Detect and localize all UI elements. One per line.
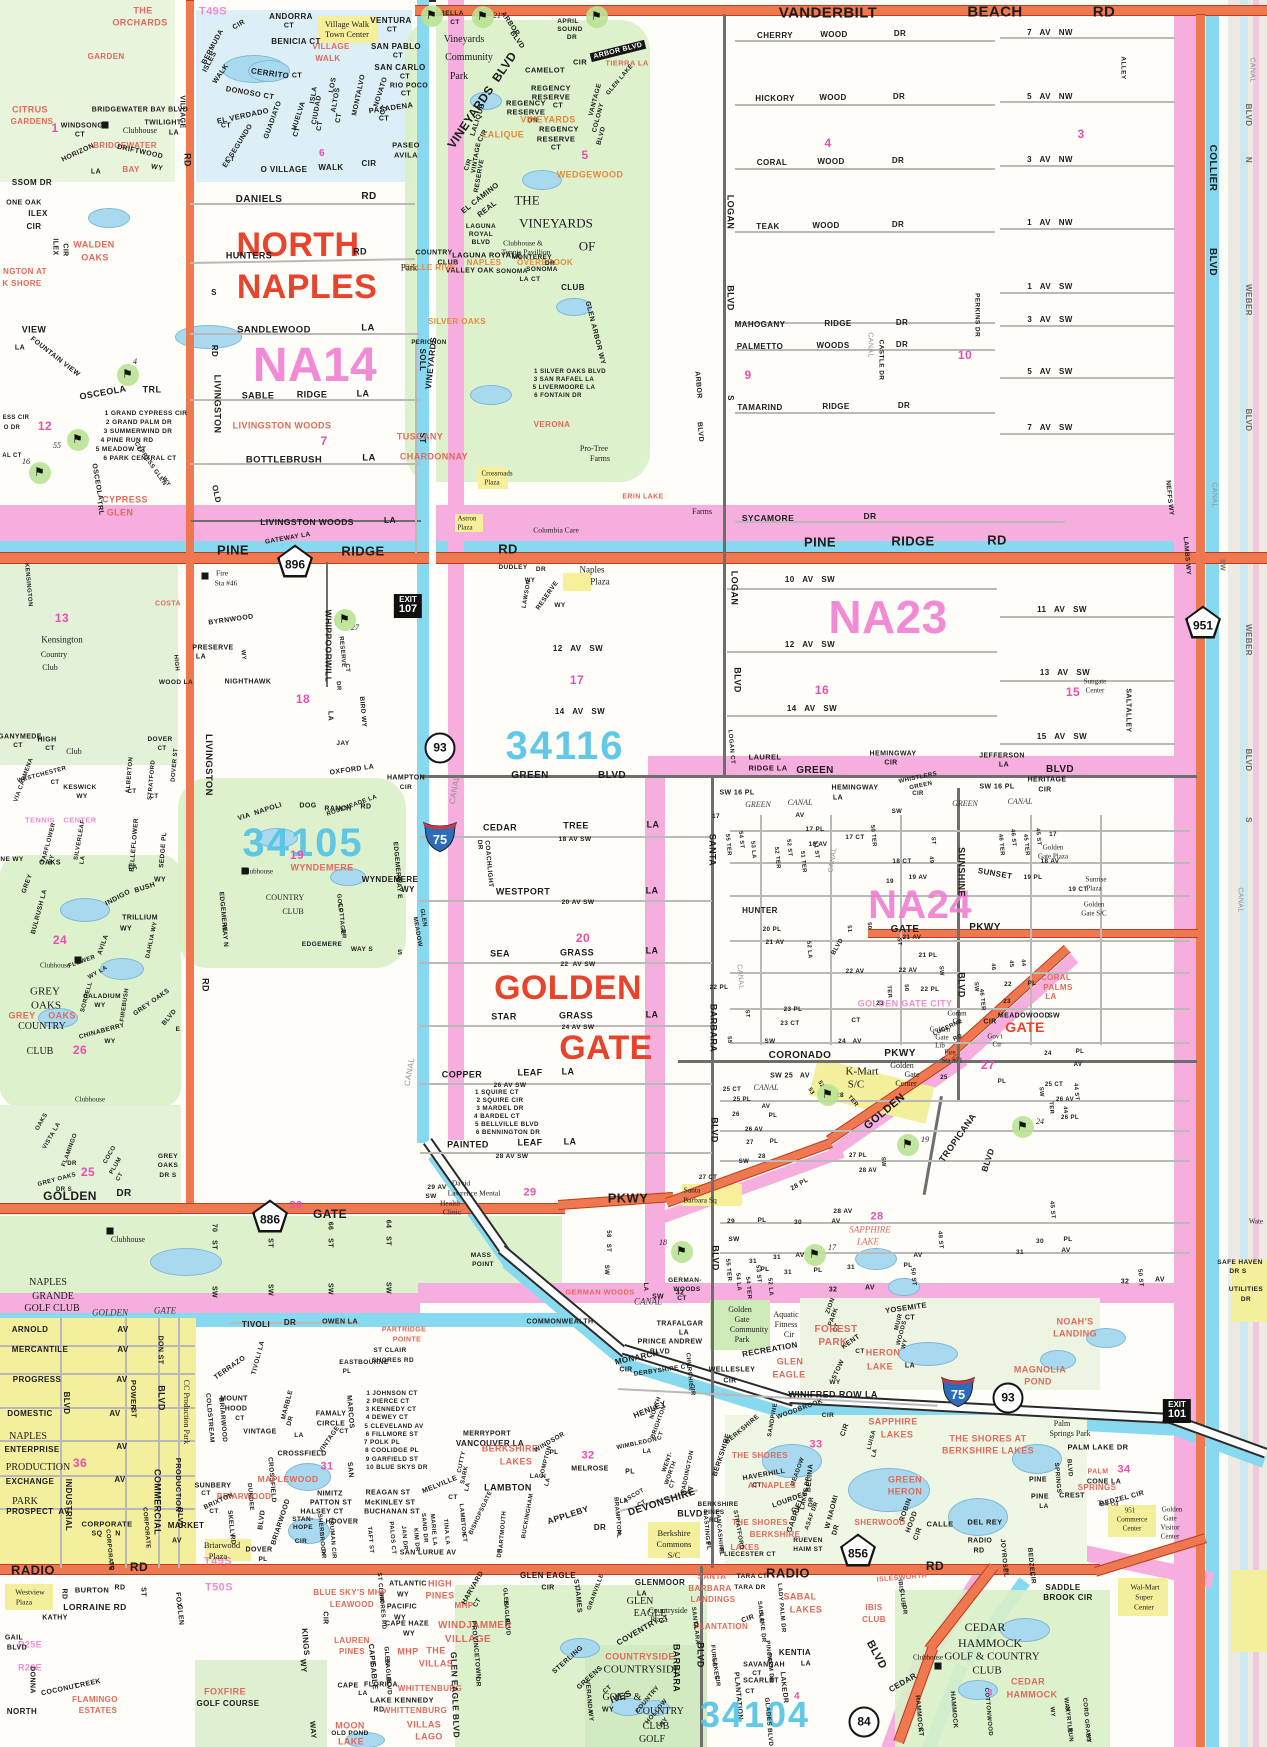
map-label: 17 PL bbox=[806, 827, 825, 833]
map-label: FOXFIRE bbox=[204, 1688, 246, 1697]
map-label: SANTA bbox=[698, 1573, 727, 1581]
map-label: CT bbox=[400, 74, 410, 81]
map-label: CEDAR bbox=[1011, 1678, 1045, 1687]
road-g bbox=[735, 40, 995, 42]
map-label: CIR bbox=[1038, 787, 1051, 794]
park-flag-icon: ⚑ bbox=[334, 609, 356, 631]
map-label: BLVD bbox=[1065, 1459, 1073, 1477]
map-label: WAY bbox=[308, 1721, 317, 1739]
road-g bbox=[720, 1160, 1190, 1162]
map-label: Visitor bbox=[1160, 1525, 1179, 1532]
map-label: DOMESTIC bbox=[7, 1410, 52, 1418]
map-label: FOUNTAIN VIEW bbox=[29, 336, 81, 379]
map-label: 6 FILLMORE ST bbox=[366, 1432, 418, 1438]
map-label: 18 bbox=[659, 1239, 667, 1247]
map-label: SW bbox=[1048, 1013, 1060, 1020]
map-label: LA bbox=[643, 1449, 652, 1455]
map-label: FLAMINGO bbox=[72, 1696, 118, 1704]
map-label: 27 PL bbox=[849, 1153, 867, 1159]
map-label: LAKE bbox=[779, 1671, 788, 1692]
map-label: GREEN bbox=[909, 781, 933, 792]
map-label: TERRAZO bbox=[213, 1355, 247, 1382]
map-label: BARBARA bbox=[688, 1585, 731, 1593]
map-label: 26 AV bbox=[745, 1127, 763, 1133]
map-label: 29 AV bbox=[427, 1185, 446, 1192]
map-label: WAY N bbox=[220, 924, 228, 947]
map-label: 18 bbox=[296, 693, 310, 705]
map-label: WY bbox=[120, 926, 132, 933]
map-label: 28 bbox=[758, 1154, 765, 1160]
map-label: SW bbox=[937, 966, 944, 977]
map-label: Club bbox=[42, 664, 58, 672]
road-g bbox=[190, 203, 415, 205]
map-label: COMMERCIAL bbox=[153, 1469, 162, 1535]
map-label: 12 bbox=[38, 420, 52, 432]
map-label: OF bbox=[579, 240, 596, 253]
map-label: GREEN bbox=[888, 1476, 922, 1485]
map-label: 54 LA bbox=[734, 1273, 742, 1292]
map-label: NAPLES bbox=[467, 259, 502, 267]
map-label: DR bbox=[67, 1161, 76, 1167]
map-label: 7 AV NW bbox=[1027, 29, 1073, 37]
map-label: THE bbox=[426, 1647, 445, 1656]
map-label: WHITTENBURG bbox=[383, 1707, 447, 1715]
map-label: 20 AV SW bbox=[562, 900, 595, 907]
map-label: Community bbox=[730, 1326, 768, 1334]
map-label: BLVD bbox=[726, 285, 735, 310]
map-label: RD bbox=[201, 978, 210, 992]
map-label: AV bbox=[913, 1253, 922, 1260]
map-label: GERMAN WOODS bbox=[565, 1288, 634, 1296]
map-label: DR bbox=[896, 319, 908, 327]
map-label: DR bbox=[567, 35, 577, 42]
map-label: 4 BARDEL CT bbox=[474, 1114, 520, 1120]
map-label: 3 bbox=[1077, 128, 1084, 140]
map-label: TIVOLI bbox=[242, 1321, 270, 1329]
map-label: 23 CT bbox=[780, 1021, 799, 1027]
map-label: SEA bbox=[490, 950, 510, 959]
map-label: CIR bbox=[541, 1585, 554, 1592]
map-label: AV bbox=[1074, 1062, 1083, 1068]
map-label: MAPLEWOOD bbox=[258, 1475, 319, 1484]
map-label: PL bbox=[343, 1369, 351, 1375]
map-label: PROGRESS bbox=[13, 1376, 62, 1384]
map-label: OXFORD LA bbox=[329, 763, 374, 776]
map-label: 49 ST bbox=[936, 1231, 944, 1249]
map-label: WEBER bbox=[1244, 284, 1252, 316]
map-label: ST bbox=[327, 1238, 334, 1248]
map-label: DR bbox=[116, 1189, 131, 1199]
map-label: CANAL bbox=[735, 964, 744, 990]
map-label: CORAL bbox=[757, 159, 787, 167]
map-label: CIR bbox=[27, 223, 42, 231]
map-label: GLEN bbox=[107, 509, 134, 518]
map-label: RIO POCO bbox=[390, 83, 428, 90]
map-label: EDGEMERE bbox=[302, 942, 342, 949]
map-label: 27 bbox=[981, 1059, 995, 1071]
route-shield-84: 84 bbox=[849, 1707, 880, 1738]
map-label: RD bbox=[61, 1589, 68, 1600]
map-label: 21 PL bbox=[919, 953, 938, 959]
road-g bbox=[1000, 377, 1175, 379]
map-label: SALT bbox=[1125, 688, 1132, 707]
map-label: Plaza bbox=[209, 1552, 227, 1561]
map-label: PLANTATION bbox=[694, 1623, 748, 1631]
map-label: PARK bbox=[818, 1338, 847, 1348]
map-label: CREST bbox=[1059, 1493, 1085, 1500]
map-label: ST bbox=[743, 1010, 749, 1019]
map-area bbox=[1253, 0, 1259, 1747]
map-label: PL bbox=[770, 1139, 778, 1145]
map-label: BLVD bbox=[62, 1392, 70, 1415]
map-label: WY bbox=[1085, 1733, 1092, 1744]
map-label: 19 bbox=[886, 879, 894, 885]
map-label: LOGAN bbox=[726, 195, 735, 230]
map-label: CANAL bbox=[788, 799, 813, 807]
map-label: SAVANNAH bbox=[743, 1662, 785, 1669]
map-label: 17 bbox=[712, 814, 720, 821]
map-label: VIEW bbox=[22, 326, 47, 335]
park-flag-icon: ⚑ bbox=[421, 5, 443, 27]
map-label: CT bbox=[209, 1509, 218, 1516]
map-label: 3 SUMMERWIND DR bbox=[104, 429, 173, 436]
map-label: 30 bbox=[289, 1201, 302, 1212]
map-label: GOLDEN bbox=[92, 1309, 128, 1318]
map-label: ROYAL bbox=[469, 232, 493, 239]
map-label: BRIDGEWATER BAY BLVD bbox=[92, 107, 188, 114]
map-label: CORPORATE bbox=[82, 1520, 133, 1528]
map-label: Super bbox=[1135, 1593, 1153, 1601]
map-label: GERMAN- bbox=[668, 1278, 702, 1285]
map-label: Park bbox=[450, 72, 468, 82]
map-label: 6 BENNINGTON DR bbox=[476, 1130, 540, 1136]
map-label: GLEN bbox=[777, 1358, 804, 1367]
map-label: SW bbox=[739, 1159, 749, 1165]
map-label: WY bbox=[397, 1592, 409, 1599]
map-label: ESS CIR bbox=[3, 415, 30, 421]
svg-text:75: 75 bbox=[433, 832, 447, 847]
map-label: 4 DEWEY CT bbox=[366, 1415, 408, 1421]
map-label: 18 CT bbox=[892, 859, 911, 865]
map-label: CIR bbox=[723, 1378, 736, 1385]
map-label: WOOD bbox=[812, 222, 839, 230]
map-label: 22 bbox=[1004, 982, 1012, 988]
map-label: WYNDEMERE bbox=[290, 864, 353, 873]
map-label: Clubhouse bbox=[123, 127, 157, 135]
map-label: 51 ST bbox=[811, 841, 818, 859]
map-label: LAKE KENNEDY bbox=[370, 1696, 434, 1704]
park-flag-icon: ⚑ bbox=[804, 1244, 826, 1266]
map-label: PL bbox=[769, 1113, 777, 1119]
map-label: LA bbox=[196, 654, 206, 661]
map-label: LAUREL bbox=[749, 753, 782, 761]
map-label: Barbara Sq bbox=[683, 1196, 717, 1204]
map-label: 22 AV bbox=[846, 969, 865, 975]
map-label: COLDSTREAM bbox=[204, 1393, 215, 1443]
map-label: Plaza bbox=[590, 578, 610, 587]
map-label: Clubhouse & bbox=[503, 239, 543, 247]
map-label: CIR bbox=[689, 1384, 696, 1396]
map-label: LA bbox=[646, 947, 659, 956]
map-label: Toll Ga bbox=[1097, 1501, 1118, 1508]
map-label: BLVD bbox=[711, 1245, 720, 1270]
map-label: PATTON ST bbox=[310, 1500, 352, 1507]
water-body bbox=[150, 1248, 222, 1276]
map-label: Farms bbox=[590, 455, 610, 463]
map-label: BLVD bbox=[384, 1677, 392, 1696]
map-label: 5 AV NW bbox=[1027, 93, 1073, 101]
map-label: PINE bbox=[217, 544, 249, 557]
map-label: RESERVE bbox=[537, 135, 576, 143]
road-a bbox=[957, 788, 960, 1102]
map-label: CLUB bbox=[862, 1616, 886, 1624]
map-label: WY bbox=[586, 1710, 593, 1721]
map-label: SAN LURUE AV bbox=[400, 1550, 457, 1557]
map-label: JAY bbox=[336, 741, 349, 748]
map-label: ST bbox=[605, 1244, 611, 1252]
map-label: NGTON AT bbox=[3, 268, 47, 276]
map-label: N bbox=[1244, 157, 1252, 163]
map-label: 1 JOHNSON CT bbox=[366, 1391, 417, 1397]
map-label: SW 25 AV bbox=[770, 1073, 810, 1080]
map-label: CT bbox=[752, 1483, 761, 1490]
map-label: DON ST bbox=[157, 1336, 164, 1365]
map-label: GARDEN bbox=[87, 53, 124, 61]
map-label: AVILA bbox=[394, 151, 418, 159]
map-label: CT bbox=[916, 1727, 923, 1737]
map-label: 22 PL bbox=[710, 985, 729, 991]
map-label: Fitness bbox=[775, 1321, 798, 1329]
map-label: WY bbox=[1049, 1707, 1056, 1718]
map-label: COACHLIGHT bbox=[483, 840, 494, 888]
map-label: LA bbox=[384, 516, 396, 525]
map-label: LA bbox=[679, 1330, 689, 1337]
map-label: 3 SAN RAFAEL LA bbox=[534, 377, 595, 383]
map-label: DEL REY bbox=[967, 1518, 1002, 1526]
map-label: DR bbox=[1241, 1297, 1251, 1304]
map-label: PERKINS DR bbox=[973, 293, 980, 337]
map-label: DR bbox=[473, 1677, 480, 1688]
map-label: BLVD bbox=[677, 1510, 702, 1519]
map-label: Sungate bbox=[1084, 679, 1107, 686]
map-label: 19 AV bbox=[909, 875, 928, 881]
map-label: OWEN LA bbox=[322, 1319, 358, 1326]
map-label: S bbox=[397, 950, 402, 957]
map-label: THE bbox=[133, 7, 152, 16]
map-label: LA bbox=[91, 169, 101, 176]
map-label: 4 bbox=[824, 137, 831, 149]
map-label: 50 ST bbox=[1136, 1269, 1144, 1287]
map-label: TIVOLI LA bbox=[251, 1340, 266, 1376]
map-label: DR bbox=[901, 1605, 908, 1615]
map-label: 29 bbox=[727, 1219, 735, 1226]
map-label: LAKE bbox=[338, 1738, 364, 1747]
map-label: NOAH'S bbox=[1056, 1318, 1093, 1327]
map-label: WOOD bbox=[817, 158, 844, 166]
map-label: 951 bbox=[1125, 1508, 1136, 1515]
map-label: DR bbox=[863, 512, 876, 521]
map-label: OAKS bbox=[48, 1012, 76, 1021]
map-label: DR bbox=[892, 157, 904, 165]
map-label: ANDORRA bbox=[269, 13, 313, 21]
map-label: 12 AV SW bbox=[785, 641, 835, 649]
map-label: WY bbox=[602, 1707, 614, 1714]
map-label: CT bbox=[851, 1018, 860, 1024]
map-label: BUCHANAN ST bbox=[364, 1509, 420, 1516]
map-label: 1 SQUIRE CT bbox=[475, 1090, 519, 1096]
map-label: 32 bbox=[829, 1287, 838, 1294]
map-label: GREY bbox=[8, 1012, 35, 1021]
map-label: CANAL bbox=[1211, 482, 1218, 507]
map-label: DR bbox=[287, 1415, 296, 1427]
map-label: WY bbox=[554, 603, 565, 610]
map-label: TUSCANY bbox=[397, 433, 443, 442]
road-g bbox=[730, 830, 1190, 832]
map-label: KINGS bbox=[300, 1628, 310, 1656]
map-label: LA bbox=[637, 1591, 647, 1598]
map-label: SW bbox=[1037, 1087, 1044, 1098]
map-label: PINES bbox=[339, 1648, 365, 1656]
road-a bbox=[678, 1060, 1197, 1063]
map-label: TARA CT bbox=[737, 1574, 768, 1581]
map-label: LEAF bbox=[517, 1139, 542, 1148]
map-label: 52 LA bbox=[766, 1278, 774, 1297]
map-label: BAY bbox=[122, 166, 139, 174]
map-label: BLVD bbox=[957, 972, 966, 997]
map-label: SABLE bbox=[242, 392, 275, 401]
park-flag-icon: ⚑ bbox=[586, 6, 608, 28]
map-label: NA14 bbox=[253, 342, 377, 390]
map-label: RIDGE bbox=[824, 320, 851, 328]
map-label: GARDENS bbox=[11, 118, 54, 126]
map-label: WHIPPOORWILL bbox=[324, 610, 333, 683]
interstate-shield-75: 75 bbox=[423, 819, 457, 858]
map-label: Gate Plaza bbox=[1038, 854, 1068, 861]
map-label: RD bbox=[361, 192, 376, 202]
map-label: 51 TER bbox=[798, 851, 806, 873]
map-label: CITRUS bbox=[12, 106, 48, 115]
map-label: Village Walk bbox=[325, 20, 369, 29]
map-label: CLUB bbox=[282, 908, 303, 916]
map-label: GOLDEN bbox=[494, 971, 642, 1005]
map-label: 31 bbox=[749, 1259, 757, 1266]
map-label: KATHY bbox=[42, 1615, 68, 1622]
park-flag-icon: ⚑ bbox=[117, 364, 139, 386]
map-label: PAINTED bbox=[447, 1141, 489, 1150]
route-shield-93: 93 bbox=[993, 1383, 1024, 1414]
map-label: FLORIDA bbox=[364, 1682, 398, 1689]
map-label: SPRINGS bbox=[1078, 1484, 1117, 1492]
map-label: GREEN bbox=[796, 766, 834, 776]
map-label: CIR bbox=[362, 160, 377, 168]
road-g bbox=[727, 715, 997, 717]
map-label: AL CT bbox=[2, 453, 22, 459]
map-label: Springs Park bbox=[1049, 1430, 1090, 1438]
map-label: GOLF CLUB bbox=[24, 1304, 79, 1314]
map-label: RD bbox=[987, 534, 1007, 547]
map-label: REGENCY bbox=[531, 84, 571, 92]
map-label: Vineyards bbox=[444, 35, 485, 45]
map-label: LEAF bbox=[517, 1069, 542, 1078]
map-label: WY bbox=[525, 578, 535, 584]
map-label: PINE bbox=[1031, 1494, 1049, 1501]
map-label: LAKES bbox=[790, 1606, 823, 1615]
map-label: SW bbox=[211, 1286, 218, 1298]
map-label: CLUB bbox=[561, 284, 585, 292]
map-label: 12 AV SW bbox=[553, 645, 603, 653]
map-label: SUNSHINE bbox=[957, 847, 966, 897]
map-label: GOLDEN bbox=[43, 1190, 97, 1202]
map-label: ST bbox=[211, 1240, 218, 1250]
map-label: RD bbox=[709, 1518, 719, 1524]
map-label: SW bbox=[892, 809, 902, 815]
map-label: PL bbox=[625, 1469, 635, 1476]
map-label: PARTRIDGE bbox=[382, 1327, 426, 1334]
map-label: REAGAN ST bbox=[366, 1490, 411, 1497]
map-label: 28 AV bbox=[859, 1168, 877, 1174]
map-label: Health bbox=[440, 1199, 460, 1207]
map-label: 10 AV SW bbox=[785, 576, 835, 584]
map-label: HERON bbox=[866, 1349, 901, 1358]
building-icon bbox=[202, 573, 209, 580]
map-label: 55 bbox=[725, 1036, 731, 1044]
map-label: VILLAS bbox=[419, 1660, 453, 1669]
map-label: ST bbox=[385, 1236, 392, 1246]
map-label: RADIO bbox=[968, 1538, 993, 1545]
map-label: MERCANTILE bbox=[12, 1346, 68, 1354]
map-label: VINEYARDS bbox=[519, 217, 593, 230]
map-label: WY bbox=[403, 1631, 415, 1638]
map-label: PL bbox=[549, 1450, 558, 1457]
map-label: WY bbox=[1166, 504, 1173, 516]
map-label: Palm bbox=[1054, 1420, 1070, 1428]
map-label: GREEN bbox=[952, 800, 978, 808]
map-label: 20 PL bbox=[763, 927, 782, 933]
map-label: WALDEN bbox=[73, 241, 114, 250]
map-label: NEFFS bbox=[1164, 480, 1173, 504]
map-label: HAMPTON bbox=[387, 775, 425, 782]
map-label: BLVD bbox=[1244, 409, 1252, 432]
road-g bbox=[760, 815, 762, 1045]
map-label: COUNTRY bbox=[18, 1022, 66, 1032]
map-label: BLVD bbox=[710, 1117, 719, 1142]
road-g bbox=[730, 940, 1190, 942]
map-label: TAMARIND bbox=[737, 404, 782, 412]
map-label: LA bbox=[169, 130, 179, 137]
map-label: RD bbox=[926, 1560, 944, 1572]
map-label: MARKET bbox=[168, 1522, 205, 1530]
map-label: McKINLEY ST bbox=[365, 1500, 416, 1507]
map-label: RIDGE bbox=[822, 403, 849, 411]
map-label: 1 SILVER OAKS BLVD bbox=[534, 369, 606, 375]
map-label: LA bbox=[357, 390, 370, 399]
map-label: 45 TER bbox=[1021, 834, 1029, 856]
interstate-shield-75: 75 bbox=[941, 1374, 975, 1413]
map-label: S/C bbox=[848, 1080, 865, 1091]
map-label: HAMMOCK bbox=[1007, 1691, 1058, 1700]
map-label: BEACH bbox=[967, 5, 1022, 20]
map-label: 28 PL bbox=[790, 1177, 810, 1192]
map-label: HERON bbox=[888, 1488, 923, 1497]
map-label: OAKS bbox=[81, 254, 109, 263]
map-label: CT bbox=[158, 746, 167, 752]
map-label: 11 AV SW bbox=[1037, 606, 1087, 614]
map-label: 26 AV bbox=[1056, 1097, 1074, 1103]
map-label: PL bbox=[615, 1530, 622, 1539]
map-label: S bbox=[211, 289, 217, 297]
map-label: MELVILLE bbox=[421, 1475, 458, 1495]
map-label: GOLF bbox=[639, 1735, 665, 1745]
